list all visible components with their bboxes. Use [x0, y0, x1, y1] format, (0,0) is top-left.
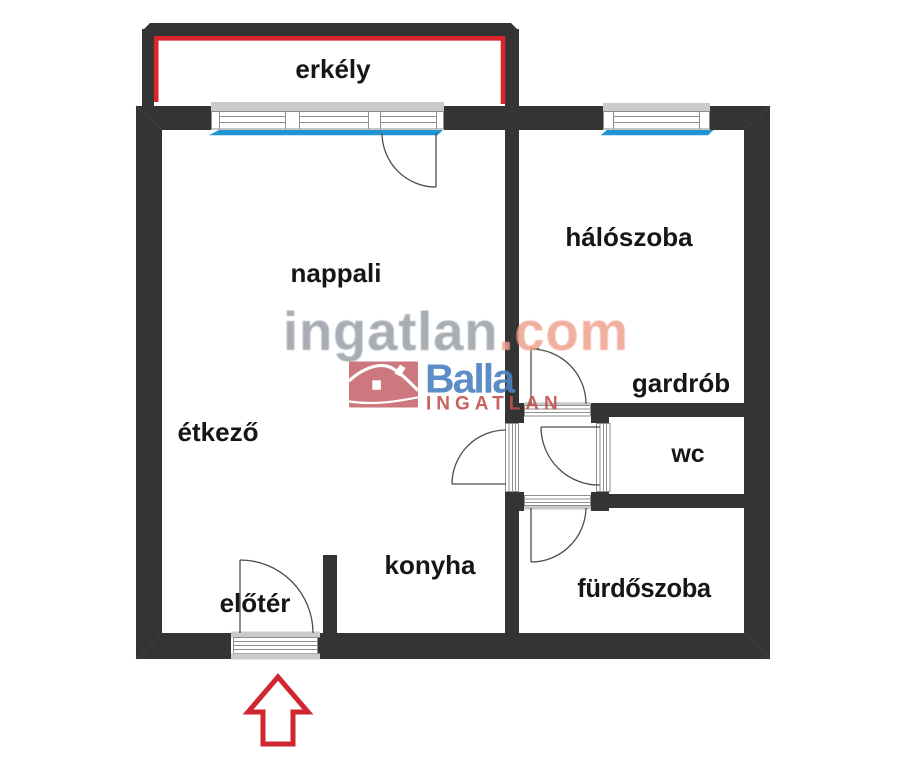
svg-text:étkező: étkező — [178, 417, 259, 447]
svg-text:hálószoba: hálószoba — [565, 222, 693, 252]
svg-text:ingatlan.com: ingatlan.com — [283, 301, 629, 362]
svg-text:wc: wc — [670, 440, 704, 468]
svg-text:fürdőszoba: fürdőszoba — [577, 575, 712, 603]
svg-text:nappali: nappali — [290, 258, 381, 288]
svg-text:konyha: konyha — [384, 550, 476, 580]
svg-text:gardrób: gardrób — [632, 368, 730, 398]
svg-text:erkély: erkély — [295, 54, 371, 84]
svg-text:INGATLAN: INGATLAN — [426, 394, 563, 415]
svg-text:előtér: előtér — [220, 588, 291, 618]
